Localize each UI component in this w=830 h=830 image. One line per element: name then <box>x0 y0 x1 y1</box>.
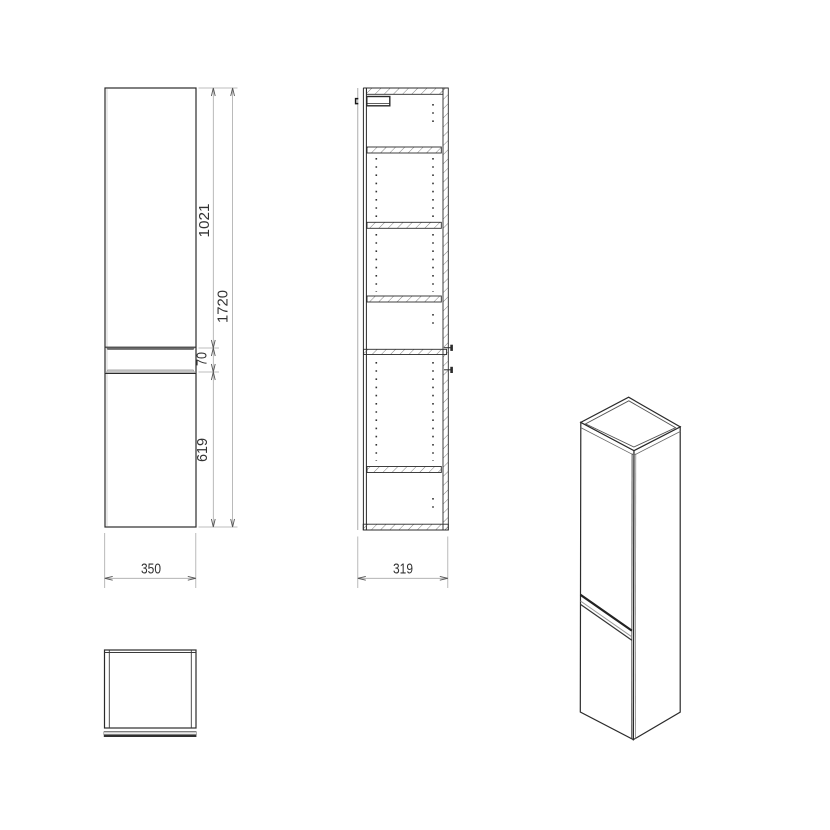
dim-label-width: 350 <box>141 561 161 578</box>
front-view: 1021 70 619 1720 350 <box>105 88 238 588</box>
shelf-5 <box>367 467 441 473</box>
iso-side-face <box>633 427 680 740</box>
isometric-view <box>580 397 680 739</box>
front-cabinet-outline <box>105 88 196 527</box>
shelf-fixed <box>364 349 447 354</box>
dim-label-gap: 70 <box>194 352 211 366</box>
plan-view <box>104 650 197 737</box>
dim-label-depth: 319 <box>393 561 413 578</box>
section-shelf-pin-holes <box>376 104 433 514</box>
section-bottom-panel <box>363 524 448 530</box>
section-shelves <box>364 147 447 473</box>
section-top-panel <box>367 88 444 94</box>
technical-drawing-canvas: 1021 70 619 1720 350 <box>0 0 830 830</box>
iso-front-face <box>580 422 634 739</box>
front-dim-width: 350 <box>105 533 196 588</box>
section-view: 319 <box>356 88 453 588</box>
front-upper-door-handle <box>105 347 196 350</box>
dim-label-lower-height: 619 <box>194 438 211 462</box>
shelf-1 <box>367 147 441 153</box>
dim-label-upper-height: 1021 <box>196 204 213 238</box>
plan-body-outline <box>105 650 197 728</box>
section-door-panel <box>443 88 448 530</box>
drawing-page: 1021 70 619 1720 350 <box>0 0 830 830</box>
section-dim-depth: 319 <box>358 537 448 589</box>
wall-bracket <box>356 97 390 106</box>
shelf-2 <box>367 222 441 228</box>
front-lower-door-handle <box>105 370 196 374</box>
plan-door-front <box>104 732 197 737</box>
shelf-3 <box>367 296 441 302</box>
dim-label-total-height: 1720 <box>215 290 232 323</box>
